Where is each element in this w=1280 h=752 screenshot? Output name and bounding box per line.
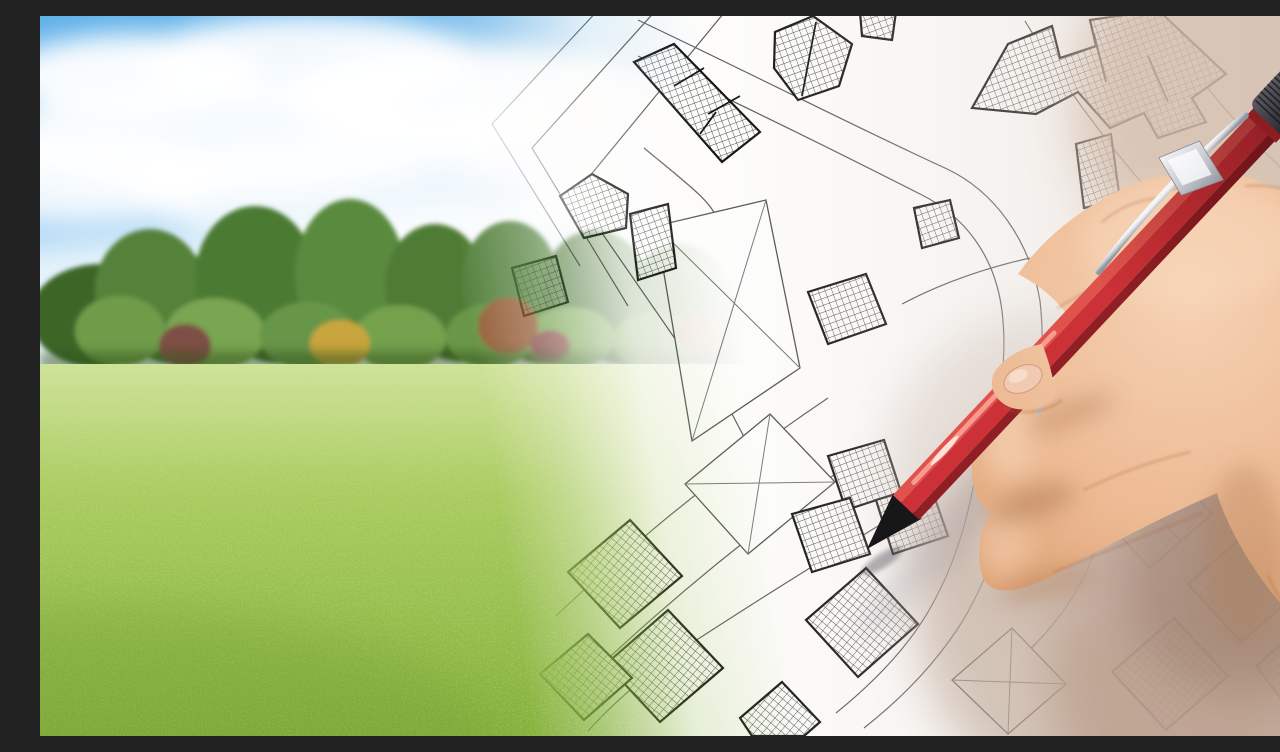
scene-land-planning-composite bbox=[40, 16, 1280, 736]
